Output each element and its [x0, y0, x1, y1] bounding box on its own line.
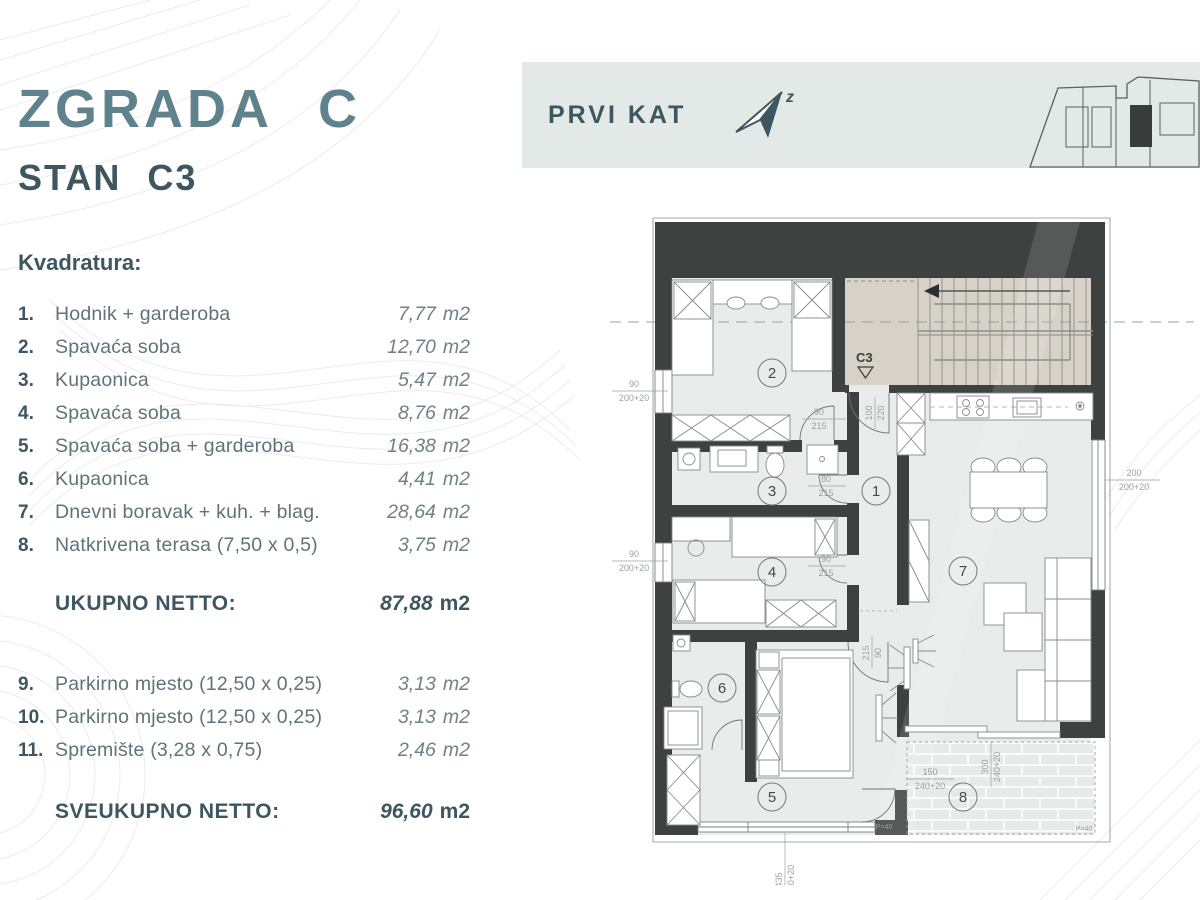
list-item: 5.Spavaća soba + garderoba16,38m2 [18, 435, 470, 468]
list-item: 9.Parkirno mjesto (12,50 x 0,25)3,13m2 [18, 673, 470, 706]
svg-text:6: 6 [718, 680, 726, 697]
item-value: 5,47m2 [398, 369, 470, 392]
building-title: ZGRADA C [18, 78, 361, 140]
svg-text:215: 215 [818, 568, 833, 578]
list-item: 11.Spremište (3,28 x 0,75)2,46m2 [18, 739, 470, 772]
item-name: Hodnik + garderoba [55, 303, 398, 326]
item-value: 3,75m2 [398, 534, 470, 557]
svg-text:215: 215 [818, 488, 833, 498]
item-number: 7. [18, 502, 55, 524]
area-list-heading: Kvadratura: [18, 250, 141, 276]
svg-text:300: 300 [980, 759, 990, 774]
item-value: 3,13m2 [398, 706, 470, 729]
svg-text:1: 1 [872, 483, 880, 500]
list-item: 1.Hodnik + garderoba7,77m2 [18, 303, 470, 336]
item-number: 4. [18, 403, 55, 425]
north-letter: z [785, 89, 794, 106]
item-name: Spavaća soba [55, 336, 387, 359]
item-name: Kupaonica [55, 369, 398, 392]
item-name: Kupaonica [55, 468, 398, 491]
item-name: Spremište (3,28 x 0,75) [55, 739, 398, 762]
list-item: 3.Kupaonica5,47m2 [18, 369, 470, 402]
extra-area-list: 9.Parkirno mjesto (12,50 x 0,25)3,13m2 1… [18, 673, 470, 772]
item-number: 5. [18, 436, 55, 458]
svg-text:2: 2 [768, 365, 776, 382]
subtotal-value: 87,88m2 [380, 592, 470, 616]
svg-text:90: 90 [873, 648, 883, 658]
item-number: 2. [18, 337, 55, 359]
dim-win-bottom: 435 200+20 [774, 833, 796, 885]
north-arrow-icon: z [728, 84, 802, 146]
item-value: 8,76m2 [398, 402, 470, 425]
item-value: 2,46m2 [398, 739, 470, 762]
svg-text:90: 90 [814, 407, 824, 417]
area-note-room5: P=40 [876, 824, 893, 831]
total-row: SVEUKUPNO NETTO: 96,60m2 [55, 800, 470, 824]
svg-text:4: 4 [768, 564, 776, 581]
list-item: 10.Parkirno mjesto (12,50 x 0,25)3,13m2 [18, 706, 470, 739]
item-value: 12,70m2 [387, 336, 470, 359]
svg-text:100: 100 [864, 405, 874, 420]
unit-title: STAN C3 [18, 157, 197, 199]
list-item: 7.Dnevni boravak + kuh. + blag.28,64m2 [18, 501, 470, 534]
list-item: 4.Spavaća soba8,76m2 [18, 402, 470, 435]
item-name: Spavaća soba [55, 402, 398, 425]
item-number: 1. [18, 304, 55, 326]
svg-text:240+20: 240+20 [992, 752, 1002, 782]
item-number: 8. [18, 535, 55, 557]
item-value: 4,41m2 [398, 468, 470, 491]
svg-text:80: 80 [821, 474, 831, 484]
item-name: Dnevni boravak + kuh. + blag. [55, 501, 387, 524]
item-name: Natkrivena terasa (7,50 x 0,5) [55, 534, 398, 557]
subtotal-row: UKUPNO NETTO: 87,88m2 [55, 592, 470, 616]
item-value: 16,38m2 [387, 435, 470, 458]
area-list: 1.Hodnik + garderoba7,77m2 2.Spavaća sob… [18, 303, 470, 567]
svg-text:5: 5 [768, 789, 776, 806]
floor-banner: PRVI KAT z [522, 62, 1200, 168]
item-number: 6. [18, 469, 55, 491]
svg-text:90: 90 [629, 549, 639, 559]
svg-text:220: 220 [876, 405, 886, 420]
dim-win-right: 200 200+20 [1105, 468, 1160, 492]
svg-text:215: 215 [811, 421, 826, 431]
item-name: Spavaća soba + garderoba [55, 435, 387, 458]
list-item: 2.Spavaća soba12,70m2 [18, 336, 470, 369]
building-locator-icon [1028, 75, 1200, 170]
svg-text:90: 90 [821, 554, 831, 564]
total-label: SVEUKUPNO NETTO: [55, 800, 280, 824]
svg-text:200+20: 200+20 [619, 393, 649, 403]
svg-text:200+20: 200+20 [619, 563, 649, 573]
svg-text:150: 150 [922, 767, 937, 777]
area-note-terrace: P=40 [1076, 826, 1093, 833]
svg-text:240+20: 240+20 [915, 781, 945, 791]
floor-label: PRVI KAT [548, 101, 686, 130]
item-name: Parkirno mjesto (12,50 x 0,25) [55, 673, 398, 696]
svg-text:200+20: 200+20 [1119, 482, 1149, 492]
item-name: Parkirno mjesto (12,50 x 0,25) [55, 706, 398, 729]
item-number: 11. [18, 740, 55, 762]
svg-text:7: 7 [959, 563, 967, 580]
item-number: 3. [18, 370, 55, 392]
list-item: 8.Natkrivena terasa (7,50 x 0,5)3,75m2 [18, 534, 470, 567]
item-number: 9. [18, 674, 55, 696]
total-value: 96,60m2 [380, 800, 470, 824]
svg-text:90: 90 [629, 379, 639, 389]
item-value: 28,64m2 [387, 501, 470, 524]
item-number: 10. [18, 707, 55, 729]
svg-text:8: 8 [959, 789, 967, 806]
subtotal-label: UKUPNO NETTO: [55, 592, 236, 616]
svg-text:215: 215 [861, 645, 871, 660]
svg-text:200: 200 [1126, 468, 1141, 478]
item-value: 3,13m2 [398, 673, 470, 696]
entrance-unit-label: C3 [856, 350, 873, 365]
highlighted-unit [1130, 105, 1152, 147]
svg-text:3: 3 [768, 483, 776, 500]
svg-text:200+20: 200+20 [786, 865, 796, 885]
svg-text:435: 435 [774, 872, 784, 885]
list-item: 6.Kupaonica4,41m2 [18, 468, 470, 501]
floor-plan: C3 [608, 215, 1200, 885]
item-value: 7,77m2 [398, 303, 470, 326]
